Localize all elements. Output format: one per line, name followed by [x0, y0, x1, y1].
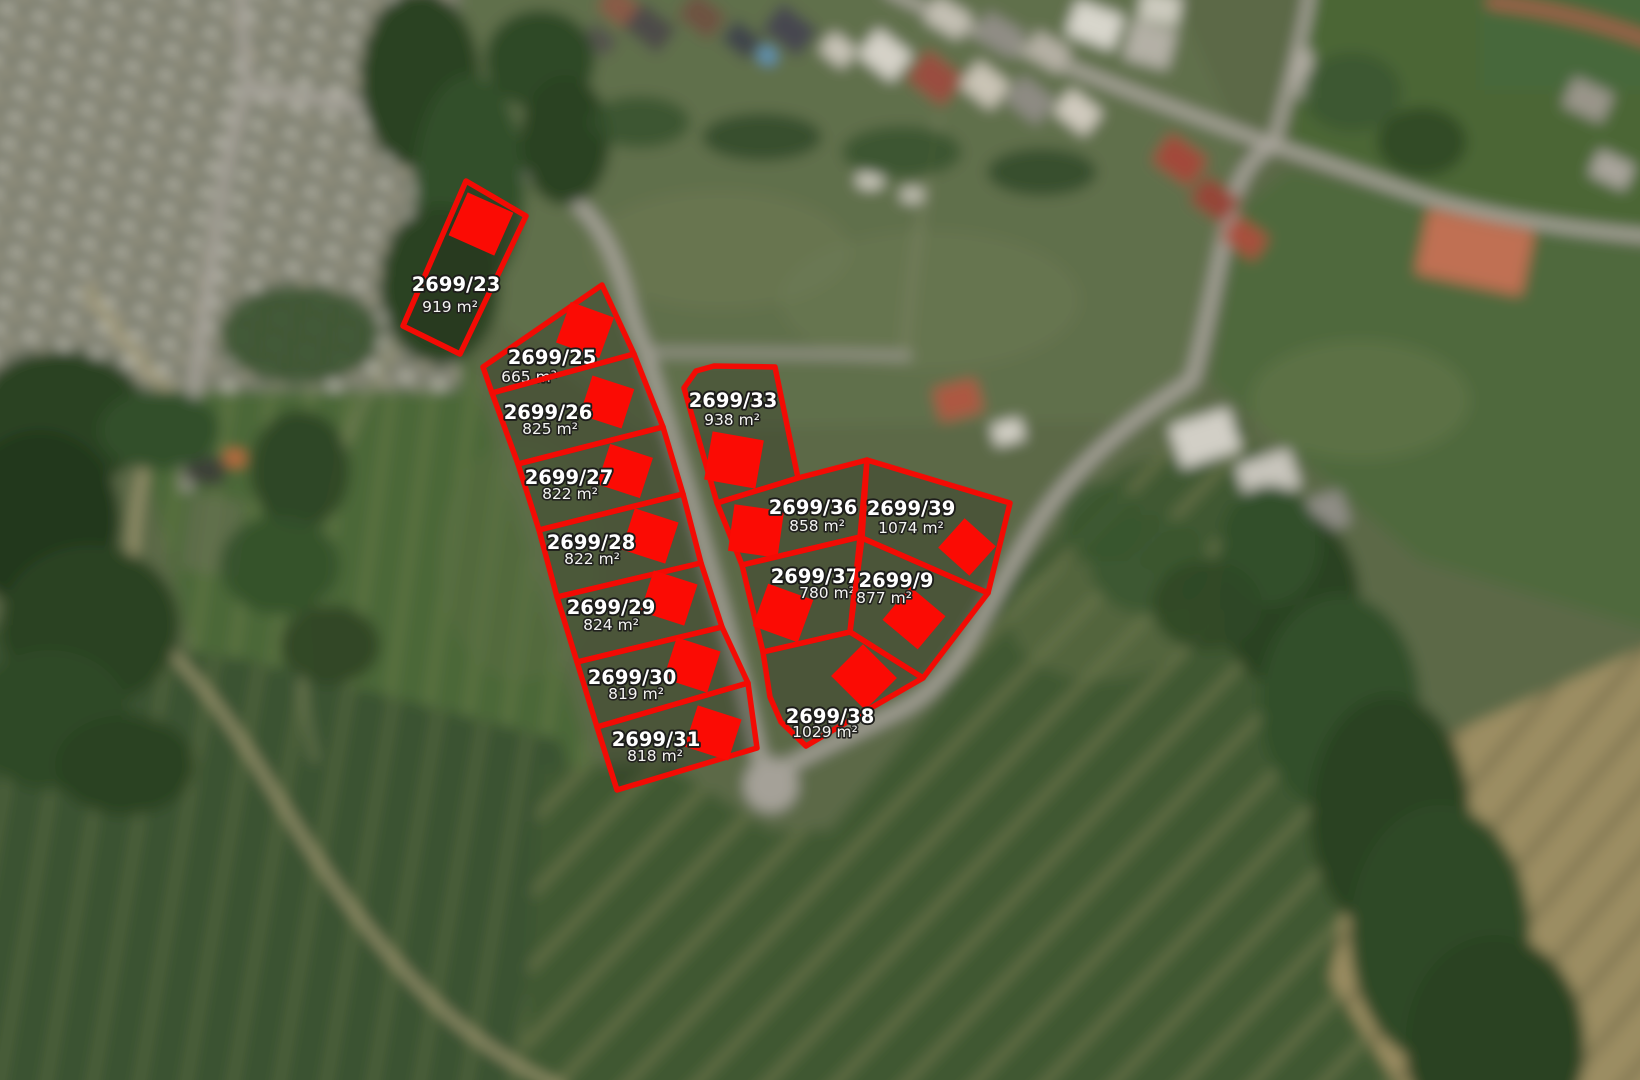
parcel-area-label: 824 m² [583, 616, 639, 634]
parcel-area-label: 1029 m² [792, 723, 858, 741]
parcel-area-label: 825 m² [522, 420, 578, 438]
parcel-area-label: 818 m² [627, 747, 683, 765]
parcel-number-label: 2699/36 [769, 496, 858, 519]
parcel-area-label: 1074 m² [878, 519, 944, 537]
parcel-area-label: 919 m² [422, 298, 478, 316]
parcel-area-label: 822 m² [542, 485, 598, 503]
parcel-area-label: 819 m² [608, 685, 664, 703]
parcel-number-label: 2699/33 [689, 389, 778, 412]
parcel-area-label: 877 m² [856, 589, 912, 607]
parcel-area-label: 938 m² [704, 411, 760, 429]
parcel-number-label: 2699/23 [412, 273, 501, 296]
parcel-marker [704, 431, 764, 488]
parcel-area-label: 858 m² [789, 517, 845, 535]
parcel-area-label: 780 m² [799, 584, 855, 602]
parcel-number-label: 2699/39 [867, 497, 956, 520]
map-canvas: 2699/23919 m²2699/25665 m²2699/26825 m²2… [0, 0, 1640, 1080]
parcel-area-label: 822 m² [564, 550, 620, 568]
aerial-map: 2699/23919 m²2699/25665 m²2699/26825 m²2… [0, 0, 1640, 1080]
